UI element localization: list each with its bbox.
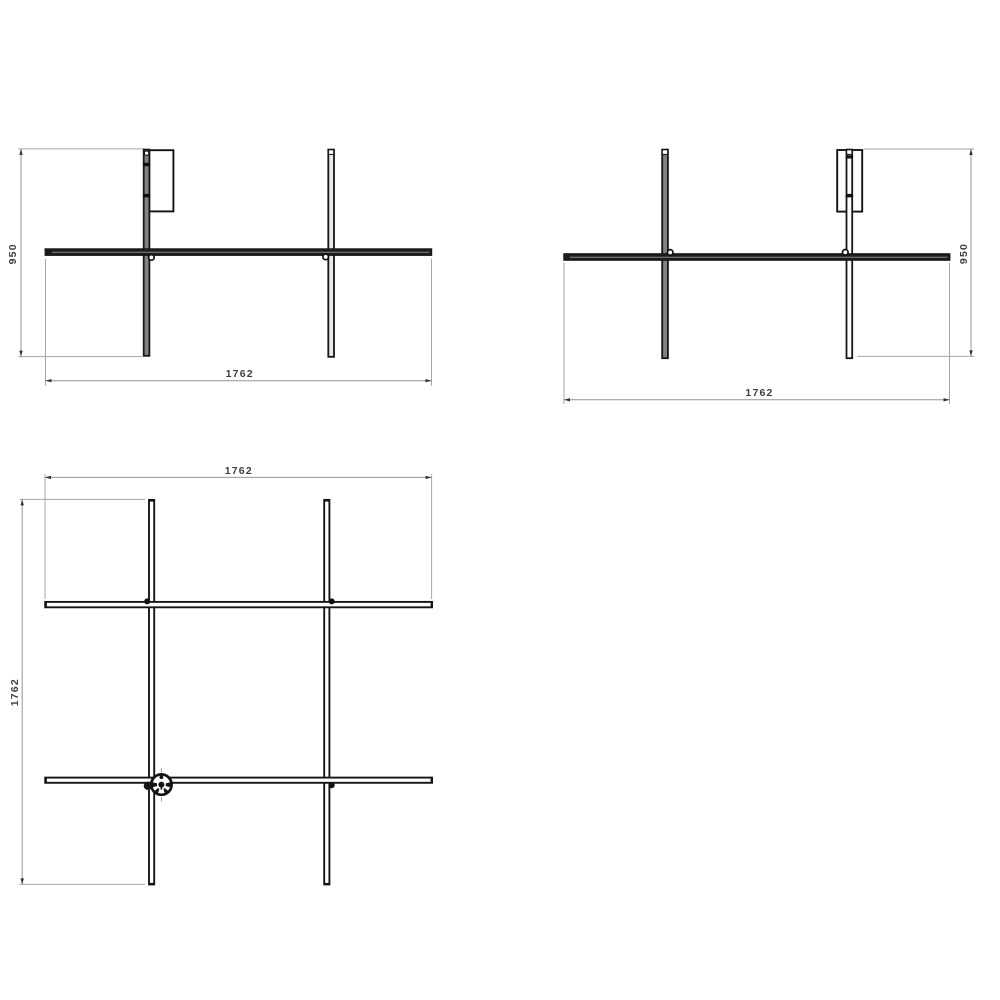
svg-text:1762: 1762 (9, 678, 21, 706)
svg-text:1762: 1762 (226, 368, 254, 380)
svg-text:1762: 1762 (745, 387, 773, 399)
svg-text:1762: 1762 (225, 465, 253, 477)
svg-text:950: 950 (958, 243, 970, 264)
svg-text:950: 950 (7, 243, 19, 264)
